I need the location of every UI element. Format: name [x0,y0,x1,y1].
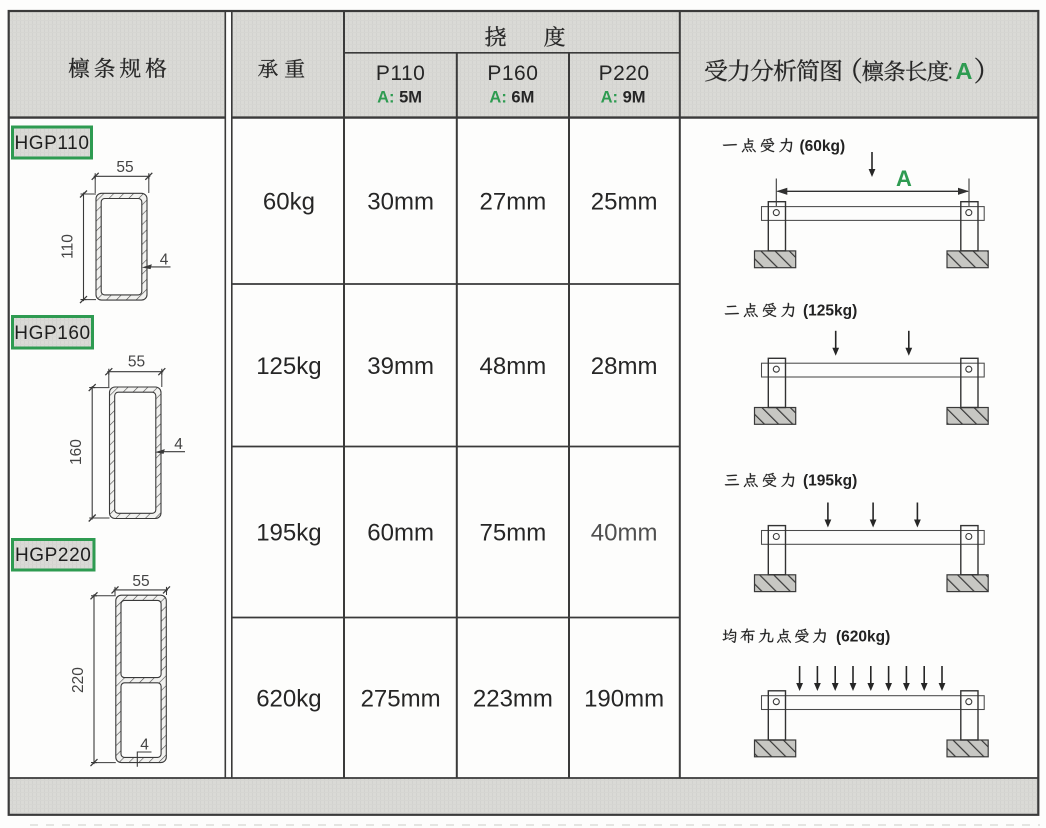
svg-text:55: 55 [116,159,133,176]
svg-text:55: 55 [132,573,149,590]
svg-text:110: 110 [60,234,77,259]
svg-text:60mm: 60mm [367,520,434,547]
svg-text:160: 160 [68,439,85,465]
svg-text:4: 4 [140,737,149,754]
svg-text:195kg: 195kg [256,520,321,547]
svg-text:223mm: 223mm [473,686,553,713]
svg-text:55: 55 [128,354,145,371]
svg-text:4: 4 [174,436,183,453]
svg-text::: : [948,62,954,84]
svg-text:30mm: 30mm [367,189,434,216]
svg-text:(125kg): (125kg) [803,303,857,320]
svg-text:P220: P220 [599,62,650,85]
svg-text:P160: P160 [487,62,538,85]
svg-text:HGP220: HGP220 [15,545,91,566]
svg-text:(60kg): (60kg) [800,138,846,155]
svg-text:48mm: 48mm [480,353,547,380]
svg-text:(195kg): (195kg) [803,473,857,490]
svg-text:27mm: 27mm [480,189,547,216]
svg-text:A: 5M: A: 5M [377,89,422,107]
svg-text:620kg: 620kg [256,686,321,713]
svg-text:40mm: 40mm [591,520,658,547]
svg-text:A: 6M: A: 6M [489,89,534,107]
svg-text:75mm: 75mm [480,520,547,547]
svg-text:HGP110: HGP110 [14,133,89,154]
svg-text:190mm: 190mm [584,686,664,713]
svg-text:275mm: 275mm [361,686,441,713]
svg-text:(620kg): (620kg) [836,628,890,645]
svg-text:39mm: 39mm [367,353,434,380]
svg-text:28mm: 28mm [591,353,658,380]
svg-text:HGP160: HGP160 [14,323,90,344]
svg-text:25mm: 25mm [591,189,658,216]
svg-text:A: A [956,58,973,84]
svg-text:60kg: 60kg [263,189,315,216]
svg-text:A: 9M: A: 9M [601,89,646,107]
svg-text:125kg: 125kg [256,353,321,380]
svg-text:A: A [896,166,912,191]
svg-text:P110: P110 [376,62,426,85]
svg-text:4: 4 [160,252,169,269]
svg-text:220: 220 [70,667,87,693]
